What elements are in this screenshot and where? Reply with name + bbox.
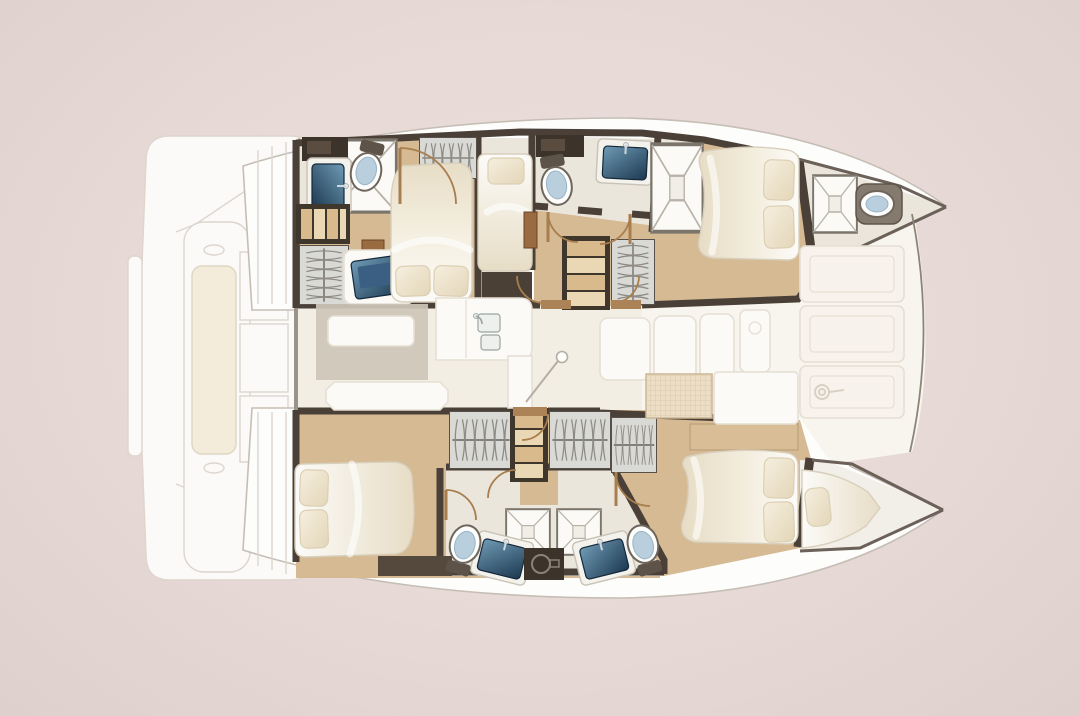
threshold [513, 407, 547, 416]
wardrobe-corridor-top [612, 240, 654, 304]
platform-tab [128, 256, 142, 456]
pillow [299, 510, 328, 549]
shower-pan-forepeak-top [813, 176, 857, 233]
floorplan-figure: Catamaran yacht deck plan — top-down int… [0, 0, 1080, 716]
lounge-seat [600, 318, 650, 380]
pillow [804, 487, 832, 527]
lounge-seat [654, 316, 696, 382]
cabinet-inset [307, 141, 331, 154]
steps-aft-top [296, 204, 350, 244]
platform-panel [240, 324, 288, 392]
toilet-forepeak-top [856, 184, 902, 224]
cabinet-inset [541, 139, 565, 151]
staircase-top [562, 236, 610, 310]
deck-area [714, 372, 798, 424]
pillow [763, 457, 794, 498]
pillow [763, 501, 794, 542]
wardrobe-bottom-1 [450, 412, 512, 468]
utility-unit [524, 548, 564, 580]
wardrobe-bottom-3 [612, 418, 656, 472]
pillow [763, 205, 794, 248]
wardrobe-aft-top-left [300, 246, 348, 304]
bench-aft-bottom [378, 556, 452, 576]
pillow [488, 158, 524, 184]
pillow [763, 159, 794, 200]
cockpit-table [740, 310, 770, 372]
pillow [433, 265, 468, 296]
wardrobe-bottom-2 [550, 412, 610, 468]
deck-panel [800, 246, 904, 302]
threshold [611, 300, 641, 309]
dining-table-top [328, 316, 414, 346]
pillow [299, 470, 328, 507]
mast-post [557, 352, 568, 363]
wood-locker [524, 212, 537, 248]
bench-cushion [192, 266, 236, 454]
threshold [541, 300, 571, 309]
sideboard-fwd-bottom [690, 424, 798, 450]
sofa-bench [326, 382, 448, 410]
pillow [395, 265, 430, 296]
trampoline-net [646, 374, 712, 418]
deck-panel [800, 306, 904, 362]
shower-cubicle-mid-top [651, 144, 702, 231]
washbasin-mid-top [596, 139, 654, 186]
floorplan-canvas: Catamaran yacht deck plan — top-down int… [0, 0, 1080, 716]
